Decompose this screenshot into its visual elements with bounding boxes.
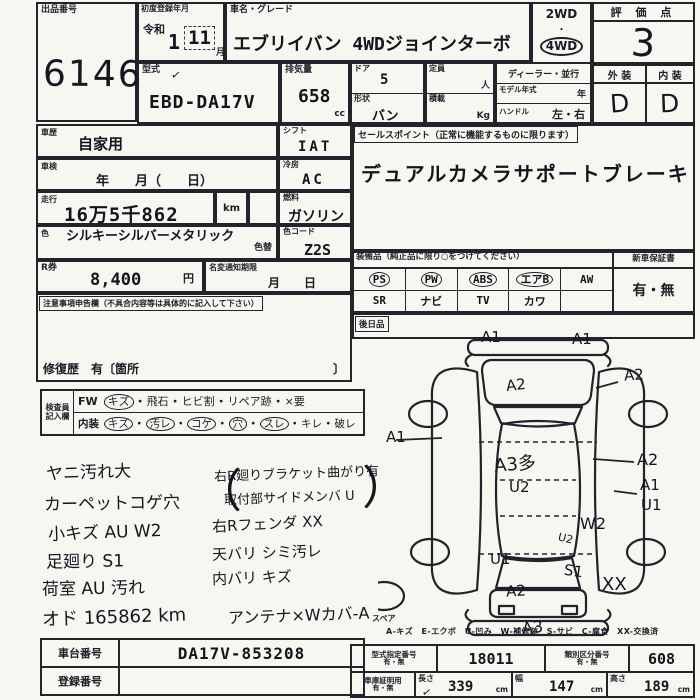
cooling-label: 冷房	[283, 161, 299, 170]
diagram-mark: A2	[637, 450, 658, 469]
height-label: 高さ	[610, 675, 626, 684]
length-unit: cm	[496, 686, 508, 694]
color-change-label: 色替	[254, 244, 272, 254]
inspector-item: リペア跡	[228, 395, 272, 408]
drive-4wd-selected: 4WD	[540, 37, 584, 56]
warranty-label: 新車保証書	[614, 253, 693, 269]
auction-number-label: 出品番号	[41, 6, 77, 16]
handle-label: ハンドル	[499, 108, 529, 116]
score-box: 評 価 点 3	[592, 2, 695, 64]
exterior-label: 外 装	[594, 66, 645, 84]
inspector-item: キレ	[301, 418, 322, 430]
inspector-row-interior: 内装 キズ汚レコゲ穴スレキレ破レ	[74, 413, 363, 434]
mileage-label: 走行	[41, 196, 57, 205]
first-registration-label: 初度登録年月	[141, 5, 189, 14]
name-change-value: 月 日	[268, 274, 316, 291]
score-value: 3	[630, 20, 656, 65]
diagram-mark: A2	[505, 375, 527, 395]
color-code-value: Z2S	[304, 241, 331, 259]
capacity-label: 定員	[429, 65, 445, 74]
model-code-label: 型式	[142, 66, 160, 76]
diagram-mark: A3多	[493, 448, 537, 478]
diagram-mark: XX	[602, 574, 627, 595]
diagram-mark: A1	[572, 330, 592, 348]
name-change-box: 名変通知期限 月 日	[204, 260, 352, 293]
car-name-value: エブリイバン 4WDジョインターボ	[233, 30, 511, 56]
equipment-label: 装備品（純正品に限り○をつけてください）	[354, 253, 612, 269]
auction-number-value: 6146	[43, 54, 143, 96]
shaken-box: 車検 年 月（ 日）	[36, 158, 278, 191]
type-number-sub: 有・無	[384, 659, 405, 667]
damage-diagram: A1 A1 A2 A2 A1 A3多 U2 A2 A1 U1 W2 U2 U1 …	[378, 330, 700, 638]
note-line: 荷室 AU 汚れ	[42, 573, 145, 600]
sales-point-box: セールスポイント（正常に機能するものに限ります） デュアルカメラサポートブレーキ	[352, 124, 695, 251]
spare-tire-label: スペア	[372, 613, 395, 624]
note-line: 足廻り S1	[46, 546, 124, 572]
door-shape-box: ドア 5 形状 バン	[350, 62, 425, 124]
cooling-value: AC	[302, 172, 325, 188]
inspector-row-exterior: FW キズ飛石ヒビ割リペア跡×要	[74, 391, 363, 413]
type-number-value: 18011	[438, 646, 546, 671]
inspector-item: 飛石	[147, 395, 169, 408]
doors-label: ドア	[354, 65, 370, 74]
sales-point-label: セールスポイント（正常に機能するものに限ります）	[354, 126, 578, 143]
color-box: 色 シルキーシルバーメタリック 色替	[36, 225, 278, 260]
length-check-mark: ✓	[421, 685, 432, 699]
repair-history-text: 修復歴 有〔箇所	[43, 360, 139, 377]
model-check-mark: ✓	[170, 67, 182, 82]
vin-label: 車台番号	[42, 640, 118, 668]
model-year-unit: 年	[577, 91, 586, 101]
color-label: 色	[41, 230, 49, 239]
fuel-box: 燃料 ガソリン	[278, 191, 352, 225]
inspector-row1-head: FW	[78, 395, 98, 408]
displacement-box: 排気量 658 cc	[280, 62, 350, 124]
color-code-label: 色コード	[283, 228, 315, 237]
diagram-mark: A2	[505, 581, 526, 600]
garage-cert-sub: 有・無	[373, 685, 394, 693]
shift-box: シフト IAT	[278, 124, 352, 158]
inspector-item: スレ	[260, 417, 289, 432]
diagram-mark: U1	[641, 496, 662, 514]
inspector-item: キズ	[104, 394, 134, 409]
plate-label: 登録番号	[42, 668, 118, 694]
drive-dot: ・	[533, 24, 590, 32]
equipment-item-abs: ABS	[469, 272, 497, 287]
shaken-value: 年 月（ 日）	[96, 170, 213, 189]
inspector-row2-head: 内装	[78, 416, 99, 431]
inspector-box: 検査員 記入欄 FW キズ飛石ヒビ割リペア跡×要 内装 キズ汚レコゲ穴スレキレ破…	[40, 389, 365, 436]
shift-label: シフト	[283, 127, 307, 136]
load-label: 積載	[429, 95, 445, 104]
handle-value: 左・右	[552, 106, 585, 122]
equipment-item-sr: SR	[373, 294, 386, 307]
note-line: 右Rフェンダ XX	[212, 510, 324, 537]
caution-label: 注意事項申告欄（不具合内容等は具体的に記入して下さい）	[39, 296, 263, 311]
month-unit: 月	[216, 49, 225, 59]
plate-value	[120, 668, 363, 694]
diagram-mark: A1	[386, 428, 406, 446]
shape-label: 形状	[354, 95, 370, 104]
mileage-box: 走行 16万5千862	[36, 191, 215, 225]
recycle-value: 8,400	[90, 270, 141, 290]
inspector-item: ヒビ割	[182, 395, 215, 408]
first-registration-box: 初度登録年月 令和 1 11 月	[137, 2, 225, 62]
note-line: 取付部サイドメンバ U	[224, 485, 355, 509]
inspector-label-2: 記入欄	[46, 413, 70, 422]
dealer-box: ディーラー・並行 モデル年式 年 ハンドル 左・右	[495, 62, 592, 124]
equipment-item-pw: PW	[421, 272, 442, 287]
model-year-label: モデル年式	[499, 86, 537, 94]
car-name-box: 車名・グレード エブリイバン 4WDジョインターボ	[225, 2, 531, 62]
era-label: 令和	[143, 21, 165, 37]
mileage-unit-cell: km	[215, 191, 248, 225]
dealer-label: ディーラー・並行	[497, 64, 590, 84]
equipment-item-airbag: エアB	[516, 272, 553, 287]
width-unit: cm	[591, 686, 603, 694]
class-number-value: 608	[630, 646, 693, 671]
inspector-item: コゲ	[187, 417, 216, 432]
exterior-grade: D	[609, 88, 630, 118]
inspector-item: 穴	[229, 417, 248, 432]
note-line: 天バリ シミ汚レ	[212, 540, 322, 565]
equipment-item-ps: PS	[369, 272, 390, 287]
grade-box: 外 装 D 内 装 D	[592, 64, 695, 124]
diagram-mark: W2	[580, 514, 606, 533]
inspector-item: ×要	[285, 395, 305, 408]
interior-label: 内 装	[647, 66, 693, 84]
warranty-value: 有・無	[614, 269, 693, 311]
car-name-label: 車名・グレード	[230, 6, 293, 16]
recycle-label: R券	[41, 264, 57, 274]
color-code-box: 色コード Z2S	[278, 225, 352, 260]
registration-month: 11	[184, 26, 215, 50]
recycle-unit: 円	[183, 270, 194, 286]
inspector-item: 汚レ	[146, 417, 175, 432]
width-label: 幅	[515, 675, 523, 684]
equipment-item-navi: ナビ	[420, 293, 442, 309]
width-value: 147	[549, 679, 574, 695]
model-code-box: 型式 ✓ EBD-DA17V	[137, 62, 280, 124]
doors-value: 5	[380, 72, 388, 88]
capacity-load-box: 定員 人 積載 Kg	[425, 62, 495, 124]
note-line: ヤニ汚れ大	[46, 457, 132, 485]
auction-number-box: 出品番号 6146	[36, 2, 137, 122]
displacement-value: 658	[298, 86, 331, 107]
height-unit: cm	[678, 686, 690, 694]
history-value: 自家用	[78, 133, 123, 154]
history-label: 車歴	[41, 129, 57, 138]
diagram-mark: U2	[509, 478, 530, 496]
note-odometer: オド 165862 km	[42, 600, 187, 631]
type-dimension-table: 型式指定番号 有・無 18011 類別区分番号 有・無 608 車庫証明用 有・…	[350, 644, 695, 698]
shape-value: バン	[372, 105, 399, 124]
equipment-item-aw: AW	[580, 273, 593, 286]
recycle-box: R券 8,400 円	[36, 260, 204, 293]
length-label: 長さ	[418, 675, 434, 684]
history-box: 車歴 自家用	[36, 124, 278, 158]
note-line: 内バリ キズ	[212, 566, 292, 590]
shaken-label: 車検	[41, 163, 57, 172]
vin-value: DA17V-853208	[120, 640, 363, 668]
auction-sheet: 出品番号 6146 初度登録年月 令和 1 11 月 車名・グレード エブリイバ…	[0, 0, 700, 700]
fuel-label: 燃料	[283, 194, 299, 203]
repair-history-close: 〕	[333, 360, 345, 377]
registration-year: 1	[168, 30, 180, 54]
displacement-unit: cc	[334, 110, 345, 120]
mileage-spare-cell	[248, 191, 278, 225]
capacity-unit: 人	[481, 82, 490, 92]
equipment-item-tv: TV	[476, 294, 489, 307]
load-unit: Kg	[477, 112, 490, 122]
displacement-label: 排気量	[285, 66, 312, 76]
length-value: 339	[448, 679, 473, 695]
drive-type-box: 2WD ・ 4WD	[531, 2, 592, 64]
note-line: アンテナ×Wカバ-A	[228, 600, 370, 629]
fuel-value: ガソリン	[288, 206, 344, 226]
equipment-box: 装備品（純正品に限り○をつけてください） PS PW ABS エアB AW SR…	[352, 251, 695, 313]
diagram-mark: A2	[623, 365, 644, 384]
shift-value: IAT	[298, 139, 332, 155]
interior-grade: D	[660, 88, 680, 118]
diagram-mark: S1	[563, 561, 584, 581]
vin-table: 車台番号 登録番号 DA17V-853208	[40, 638, 365, 696]
color-value: シルキーシルバーメタリック	[66, 230, 244, 245]
equipment-item-leather: カワ	[524, 293, 546, 309]
name-change-label: 名変通知期限	[209, 264, 257, 273]
score-label: 評 価 点	[594, 4, 693, 22]
sales-point-value: デュアルカメラサポートブレーキ	[361, 158, 690, 187]
note-line: カーペットコゲ穴	[44, 488, 180, 515]
model-code-value: EBD-DA17V	[149, 92, 256, 113]
class-number-sub: 有・無	[577, 659, 598, 667]
mileage-value: 16万5千862	[64, 200, 179, 227]
note-line: 小キズ AU W2	[48, 516, 162, 545]
damage-legend: A-キズ E-エクボ U-凹み W-補修跡 S-サビ C-腐食 XX-交換済	[386, 626, 659, 637]
inspector-item: キズ	[104, 417, 133, 432]
diagram-mark: A1	[640, 476, 660, 494]
cooling-box: 冷房 AC	[278, 158, 352, 191]
caution-box: 注意事項申告欄（不具合内容等は具体的に記入して下さい） 修復歴 有〔箇所 〕	[36, 293, 352, 382]
diagram-mark: A1	[481, 328, 501, 346]
height-value: 189	[644, 679, 669, 695]
diagram-mark: U1	[490, 550, 511, 568]
inspector-item: 破レ	[335, 418, 356, 430]
